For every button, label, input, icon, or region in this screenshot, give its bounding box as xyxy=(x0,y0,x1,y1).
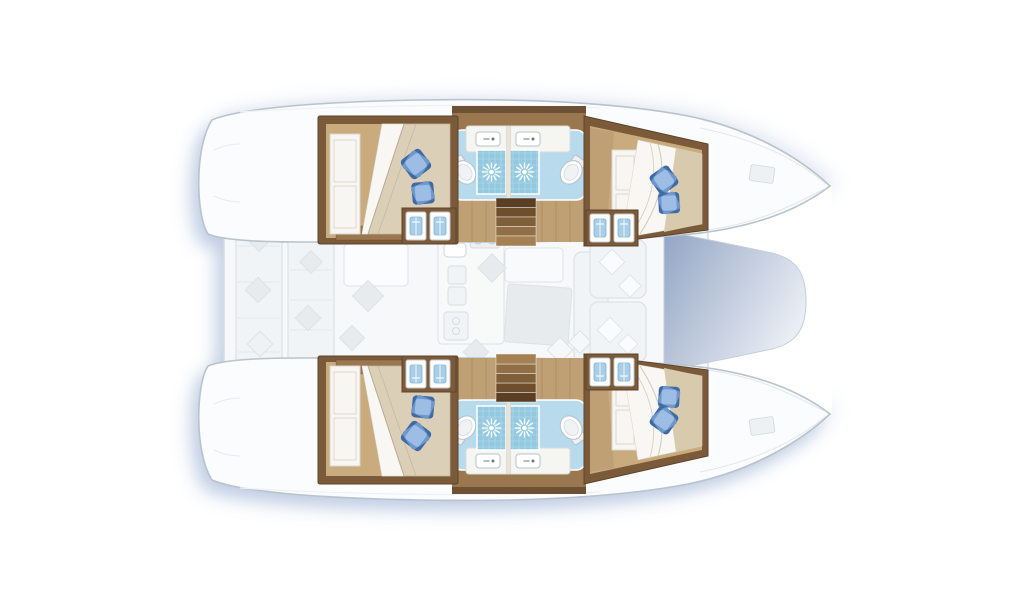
galley-cabinet xyxy=(444,312,468,340)
floor-plan-canvas xyxy=(0,0,1024,600)
galley-sink xyxy=(444,243,466,257)
fridge-drawer xyxy=(448,287,466,305)
seat-pad xyxy=(505,248,563,282)
catamaran-floor-plan xyxy=(0,0,1024,600)
dining-table xyxy=(504,284,572,346)
fridge-drawer xyxy=(448,266,466,284)
coffee-table xyxy=(344,244,408,286)
